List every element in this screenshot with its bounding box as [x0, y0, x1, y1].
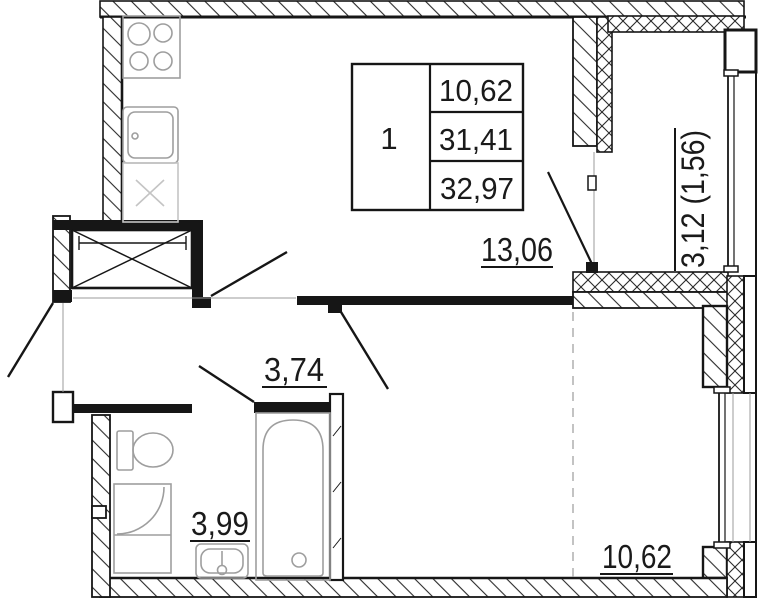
- bathroom-area-text: 3,99: [191, 505, 249, 542]
- wall-niche-right-foot: [192, 297, 211, 308]
- living-room-area-text: 13,06: [481, 231, 553, 268]
- window-cap-top: [724, 70, 738, 76]
- wall-hall-door-jamb: [328, 305, 342, 313]
- wall-under-balcony-insulation: [573, 272, 728, 292]
- balcony-area-text: 3,12 (1,56): [675, 130, 711, 268]
- wall-left-chase: [92, 506, 106, 518]
- rooms-count-value: 1: [380, 121, 397, 156]
- wall-niche-right: [192, 220, 203, 297]
- living-room-label: 13,06: [481, 231, 553, 268]
- window-cap-top: [714, 387, 730, 393]
- window-cap-bottom: [714, 542, 730, 548]
- hallway-label: 3,74: [262, 351, 327, 388]
- wall-bath-top-east: [254, 402, 334, 413]
- wall-bath-corner: [53, 392, 73, 422]
- wall-top: [100, 1, 744, 17]
- wall-bottom: [100, 578, 727, 597]
- floor-plan-page: 1 10,62 31,41 32,97 13,06 3,74 3,99 10,6…: [0, 0, 760, 600]
- info-table: 1 10,62 31,41 32,97: [352, 64, 523, 210]
- apartment-area-value: 31,41: [439, 122, 513, 157]
- wall-niche-left-foot: [53, 290, 72, 302]
- balcony-door-leaf: [588, 176, 596, 190]
- wardrobe: [72, 230, 192, 288]
- total-area-value: 32,97: [440, 171, 514, 206]
- pier-top-right: [725, 30, 756, 72]
- wall-right-insulation-upper: [727, 276, 744, 393]
- floor-plan-drawing: 1 10,62 31,41 32,97 13,06 3,74 3,99 10,6…: [0, 0, 760, 600]
- balcony-door-hinge: [586, 262, 598, 273]
- wall-balcony-insulation: [597, 17, 612, 152]
- hallway-area-text: 3,74: [264, 351, 324, 388]
- bedroom-label: 10,62: [600, 538, 673, 575]
- living-area-value: 10,62: [439, 73, 513, 108]
- balcony-label: 3,12 (1,56): [675, 128, 711, 271]
- wall-right-insulation-lower: [727, 542, 744, 597]
- wall-right-facing-lower: [744, 542, 756, 597]
- pier-right-lower: [703, 547, 727, 578]
- wall-right-facing-upper: [744, 276, 756, 393]
- wall-left-upper: [103, 17, 122, 222]
- window-cap-bottom: [724, 266, 738, 272]
- wall-hall-partition: [297, 296, 573, 305]
- wall-bath-top-west: [73, 404, 192, 413]
- bathroom-label: 3,99: [190, 505, 250, 542]
- wall-balcony-inner: [573, 17, 597, 146]
- bedroom-area-text: 10,62: [602, 538, 672, 575]
- pier-right-upper: [703, 306, 727, 387]
